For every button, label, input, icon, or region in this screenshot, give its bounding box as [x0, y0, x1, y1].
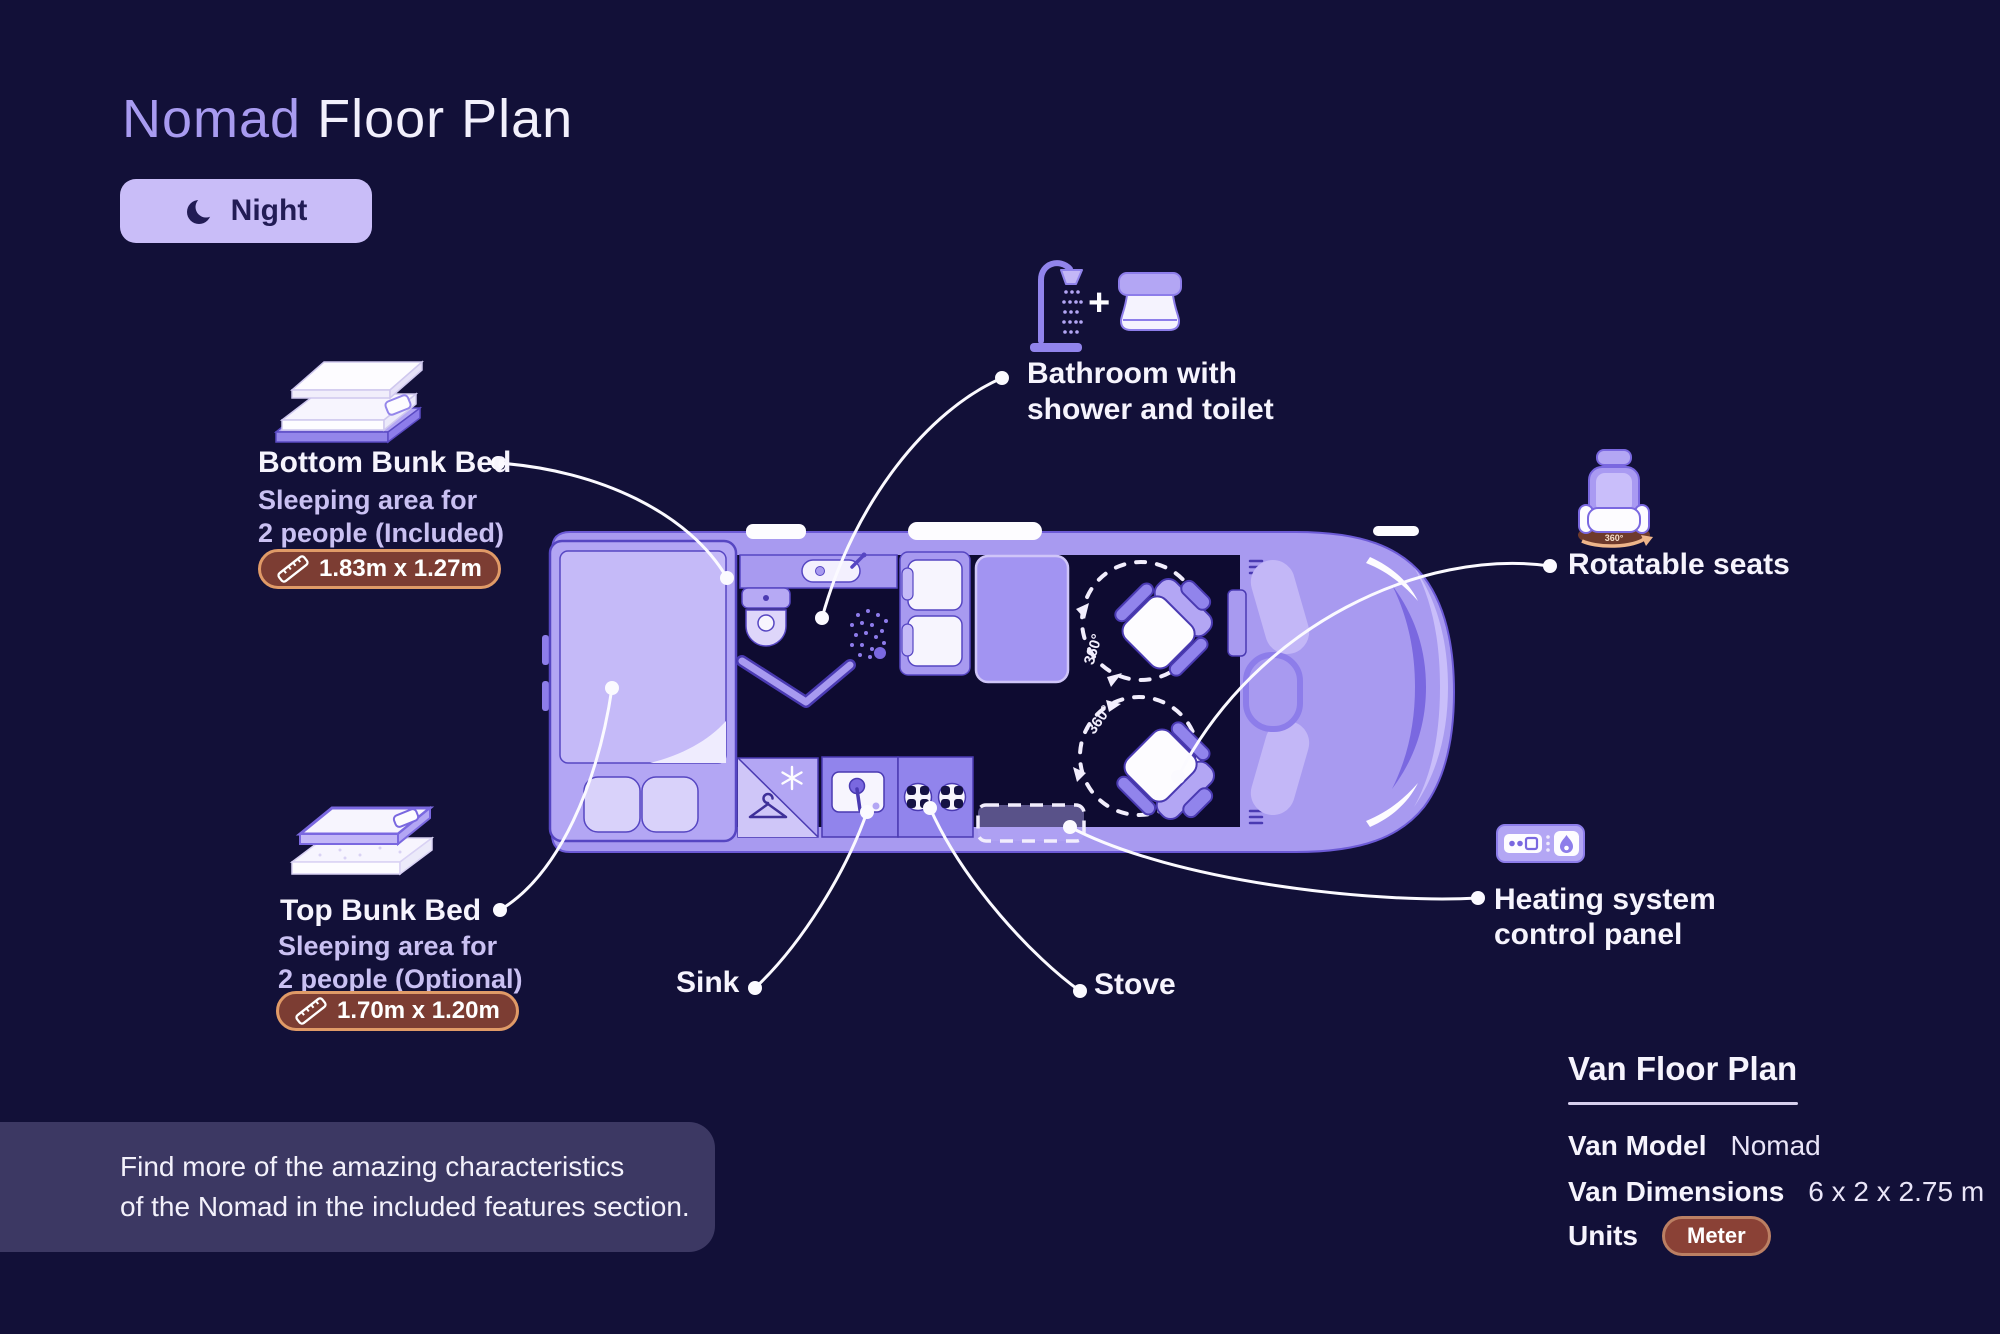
van-model-row: Van Model Nomad: [1568, 1130, 1821, 1162]
kitchen-area: [738, 757, 973, 837]
van-dimensions-label: Van Dimensions: [1568, 1176, 1784, 1208]
units-label: Units: [1568, 1220, 1638, 1252]
van-model-value: Nomad: [1730, 1130, 1820, 1162]
ruler-icon: [295, 997, 327, 1025]
bottom-bunk-desc: Sleeping area for 2 people (Included): [258, 484, 504, 550]
page-title: Nomad Floor Plan: [122, 88, 573, 150]
features-note-text: Find more of the amazing characteristics…: [120, 1147, 690, 1227]
top-bunk-title: Top Bunk Bed: [280, 894, 481, 928]
toilet-icon: [1118, 272, 1182, 332]
rotatable-seat-icon: 360°: [1576, 448, 1654, 550]
roof-vent: [746, 524, 806, 539]
units-meter-badge[interactable]: Meter: [1662, 1216, 1771, 1256]
heating-label: Heating system control panel: [1494, 882, 1716, 952]
dinette-area: [900, 552, 1068, 682]
heating-panel-icon: [1496, 824, 1586, 864]
van-dimensions-value: 6 x 2 x 2.75 m: [1808, 1176, 1984, 1208]
bathroom-label: Bathroom with shower and toilet: [1027, 356, 1274, 428]
stove-label: Stove: [1094, 968, 1176, 1002]
van-dimensions-row: Van Dimensions 6 x 2 x 2.75 m: [1568, 1176, 1984, 1208]
bottom-bunk-dimensions: 1.83m x 1.27m: [319, 555, 482, 583]
entry-step: [978, 805, 1084, 841]
top-bunk-dimensions: 1.70m x 1.20m: [337, 997, 500, 1025]
info-panel-underline: [1568, 1102, 1798, 1105]
night-toggle[interactable]: Night: [120, 179, 372, 243]
plus-sign: +: [1088, 282, 1110, 325]
bottom-bunk-dimensions-badge: 1.83m x 1.27m: [258, 549, 501, 589]
bottom-bunk-title: Bottom Bunk Bed: [258, 446, 511, 480]
rotatable-seats-label: Rotatable seats: [1568, 548, 1790, 582]
top-bunk-desc: Sleeping area for 2 people (Optional): [278, 930, 523, 996]
van-model-label: Van Model: [1568, 1130, 1706, 1162]
ruler-icon: [277, 555, 309, 583]
seat-rotation-badge: 360°: [1605, 533, 1624, 543]
burner: [905, 784, 932, 811]
roof-vent: [908, 522, 1042, 540]
steering-console: [1246, 655, 1300, 729]
sink-label: Sink: [676, 966, 739, 1000]
shower-icon: [1030, 256, 1086, 354]
page: Nomad Floor Plan Night: [0, 0, 2000, 1334]
units-row: Units Meter: [1568, 1216, 1771, 1256]
roof-vent: [1373, 526, 1419, 536]
bottom-bunk-bed-icon: [258, 354, 433, 449]
top-bunk-bed-icon: [270, 800, 445, 890]
dinette-table: [976, 556, 1068, 682]
burner: [939, 784, 966, 811]
title-rest: Floor Plan: [317, 89, 573, 149]
title-brand: Nomad: [122, 89, 301, 149]
bed-area: [550, 541, 736, 841]
shower-drain: [874, 647, 886, 659]
top-bunk-dimensions-badge: 1.70m x 1.20m: [276, 991, 519, 1031]
night-label: Night: [231, 194, 308, 228]
van-floorplan: 360° 360°: [540, 515, 1470, 860]
moon-icon: [185, 195, 217, 227]
features-note-panel: Find more of the amazing characteristics…: [0, 1122, 715, 1252]
info-panel-title: Van Floor Plan: [1568, 1050, 1797, 1088]
